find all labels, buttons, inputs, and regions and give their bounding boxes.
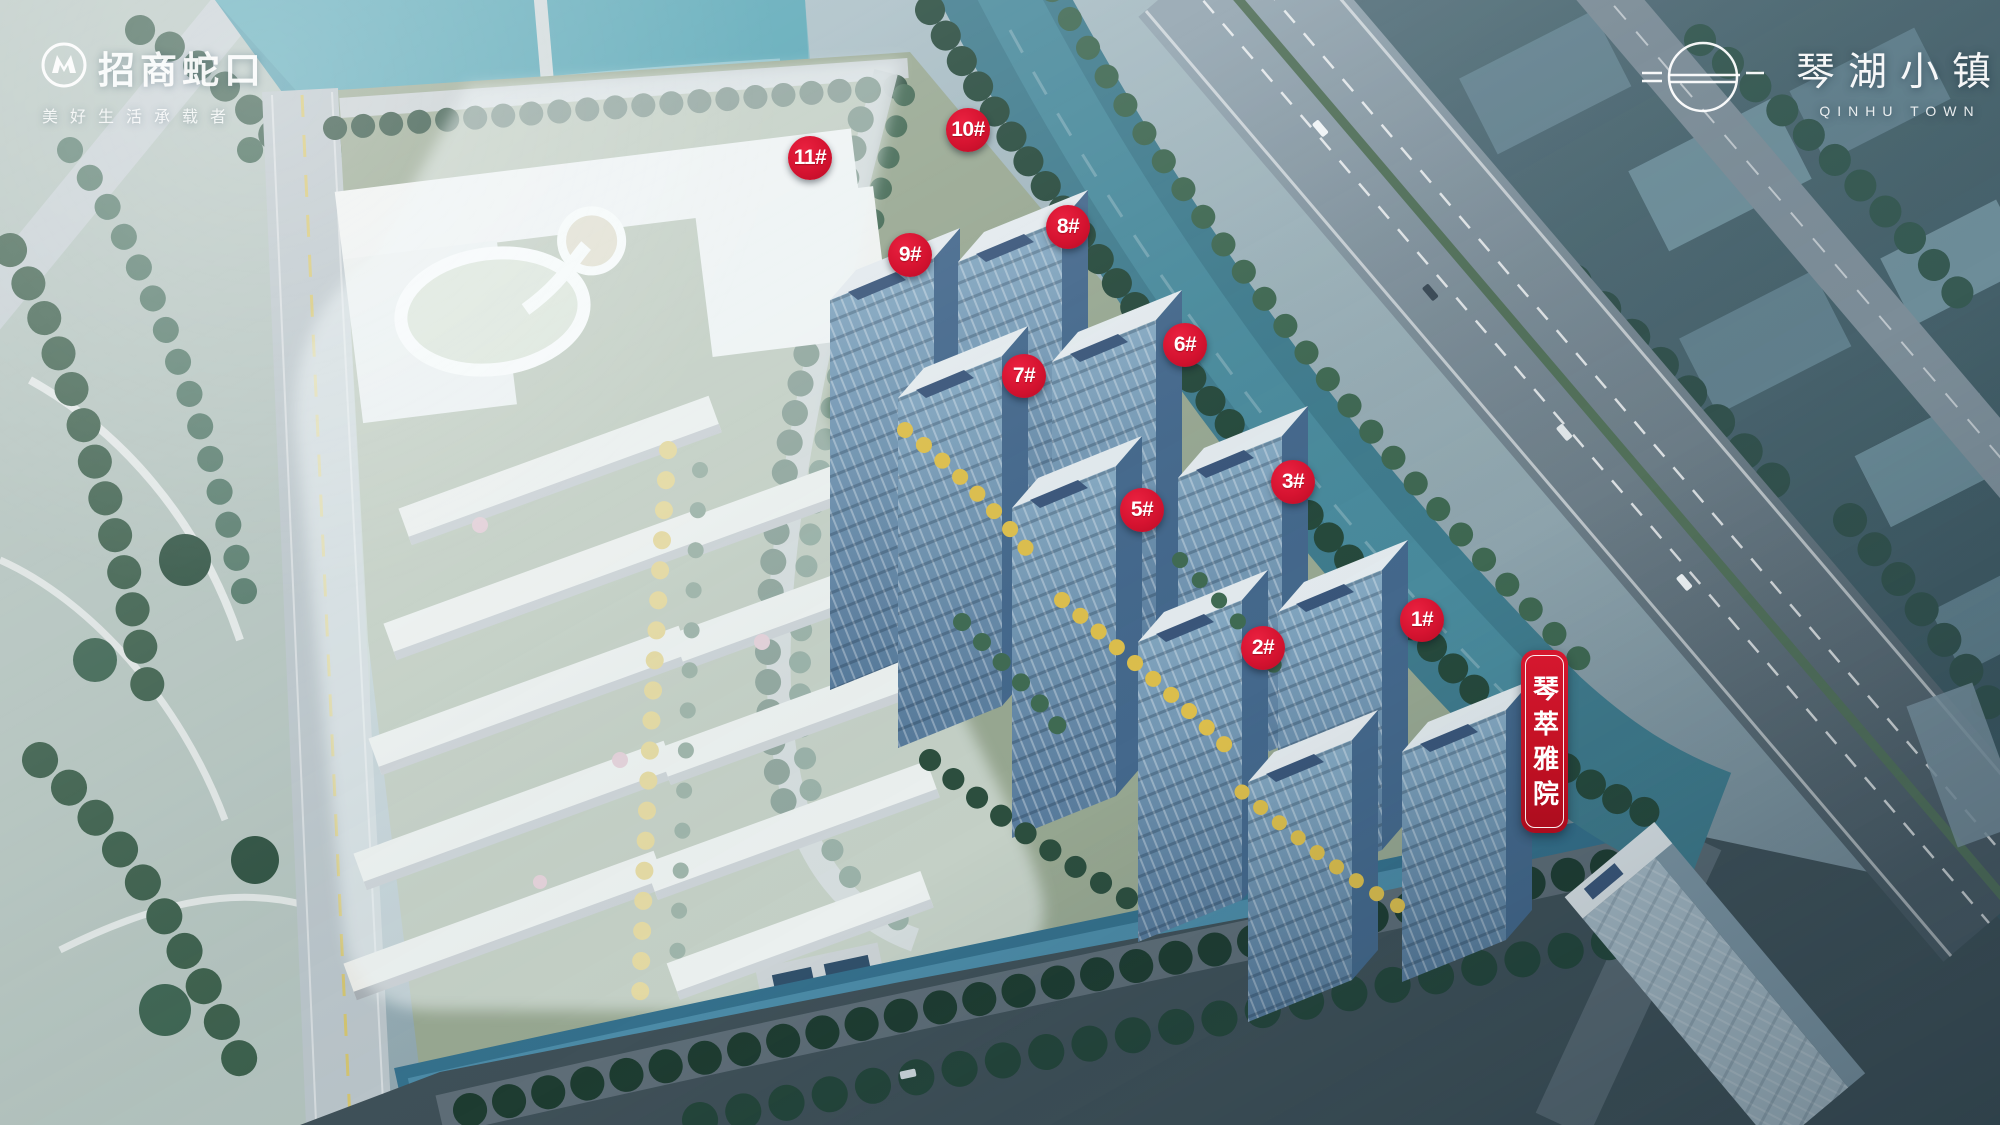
building-marker-label: 7# xyxy=(1013,364,1035,388)
zone-banner: 琴萃雅院 xyxy=(1521,650,1568,833)
building-marker-label: 2# xyxy=(1252,636,1274,660)
building-marker-1: 1# xyxy=(1400,598,1444,642)
building-marker-11: 11# xyxy=(788,136,832,180)
cmsk-m-circle-icon xyxy=(40,41,88,94)
building-marker-3: 3# xyxy=(1271,460,1315,504)
zone-banner-border: 琴萃雅院 xyxy=(1525,655,1564,828)
developer-logo: 招商蛇口 美好生活承载者 xyxy=(40,40,266,127)
circle-horizon-lines-icon xyxy=(1640,30,1770,129)
zone-banner-text: 琴萃雅院 xyxy=(1532,669,1558,815)
developer-tagline: 美好生活承载者 xyxy=(42,103,266,127)
building-marker-2: 2# xyxy=(1241,626,1285,670)
aerial-rendering xyxy=(0,0,2000,1125)
building-marker-label: 6# xyxy=(1174,333,1196,357)
project-name-en: QINHU TOWN xyxy=(1819,103,1980,119)
building-marker-label: 5# xyxy=(1131,498,1153,522)
building-marker-8: 8# xyxy=(1046,205,1090,249)
building-marker-6: 6# xyxy=(1163,323,1207,367)
building-marker-label: 1# xyxy=(1411,608,1433,632)
building-marker-5: 5# xyxy=(1120,488,1164,532)
project-name-cn: 琴湖小镇 xyxy=(1796,41,2000,97)
building-marker-9: 9# xyxy=(888,233,932,277)
building-marker-label: 11# xyxy=(794,146,826,170)
project-logo: 琴湖小镇 QINHU TOWN xyxy=(1640,30,2000,129)
building-marker-label: 3# xyxy=(1282,470,1304,494)
building-marker-label: 10# xyxy=(951,118,985,142)
developer-name: 招商蛇口 xyxy=(98,40,266,94)
building-marker-label: 8# xyxy=(1057,215,1079,239)
aerial-site-plan: 招商蛇口 美好生活承载者 琴湖小镇 QINHU TOWN 1# xyxy=(0,0,2000,1125)
building-marker-10: 10# xyxy=(946,108,990,152)
building-marker-label: 9# xyxy=(899,243,921,267)
building-marker-7: 7# xyxy=(1002,354,1046,398)
